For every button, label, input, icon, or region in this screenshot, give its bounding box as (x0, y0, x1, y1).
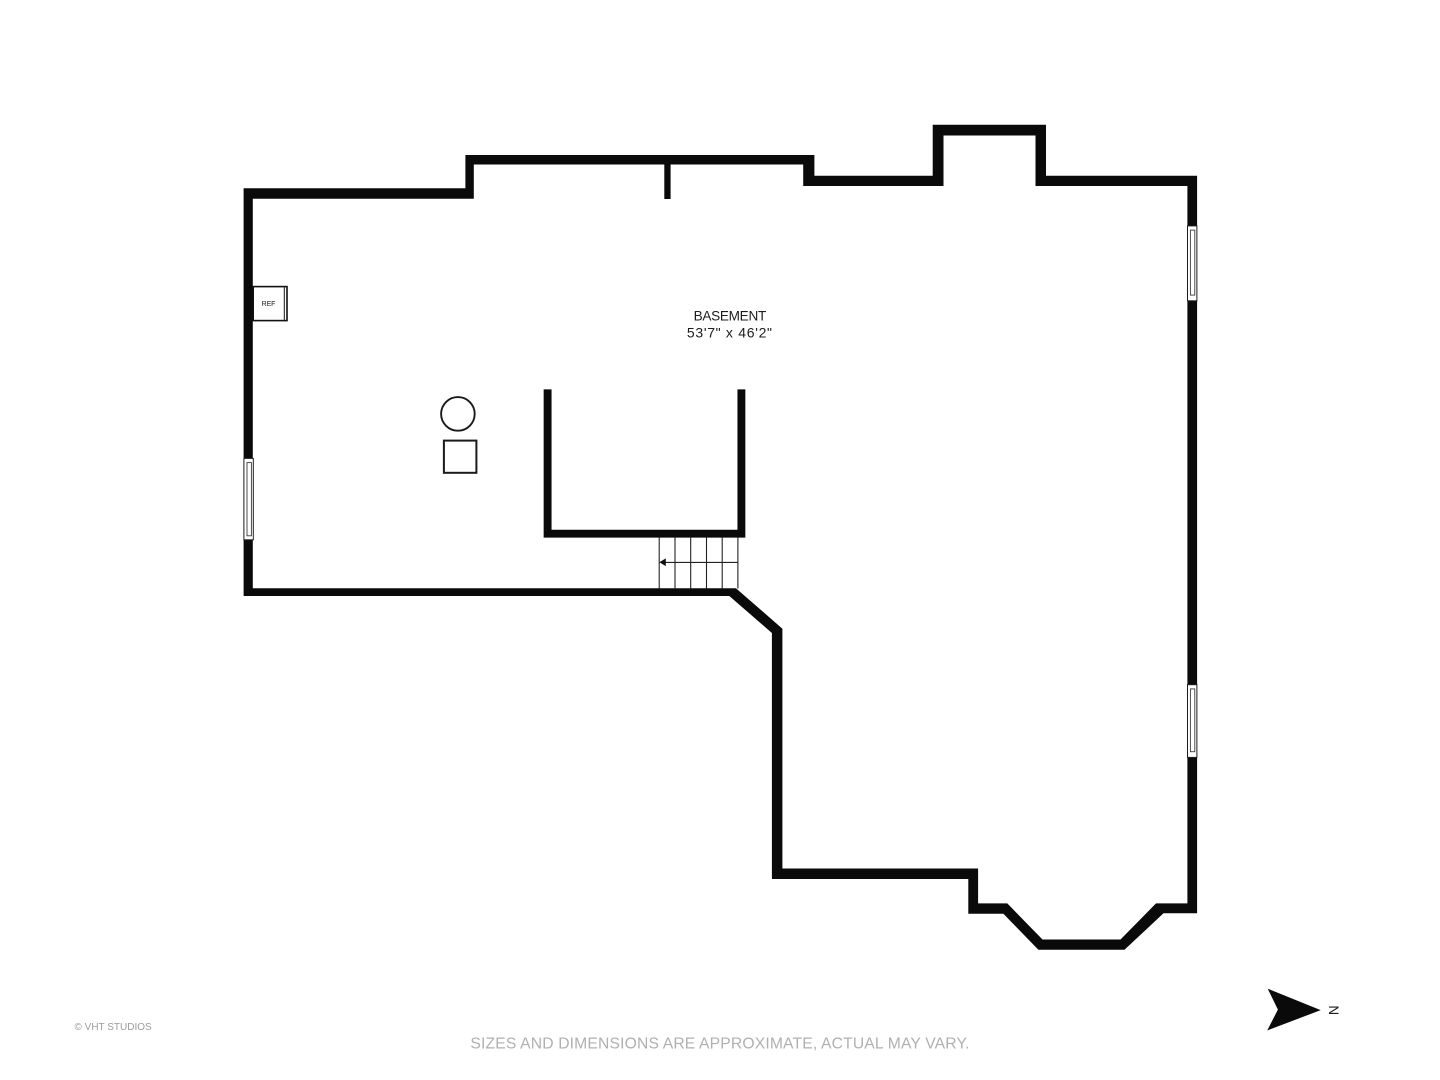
svg-text:53'7" x 46'2": 53'7" x 46'2" (687, 324, 773, 340)
svg-text:© VHT STUDIOS: © VHT STUDIOS (75, 1022, 153, 1033)
svg-text:BASEMENT: BASEMENT (694, 309, 766, 324)
svg-text:N: N (1326, 1005, 1341, 1015)
svg-text:SIZES AND DIMENSIONS ARE APPRO: SIZES AND DIMENSIONS ARE APPROXIMATE, AC… (470, 1036, 969, 1053)
svg-text:REF: REF (262, 301, 276, 308)
